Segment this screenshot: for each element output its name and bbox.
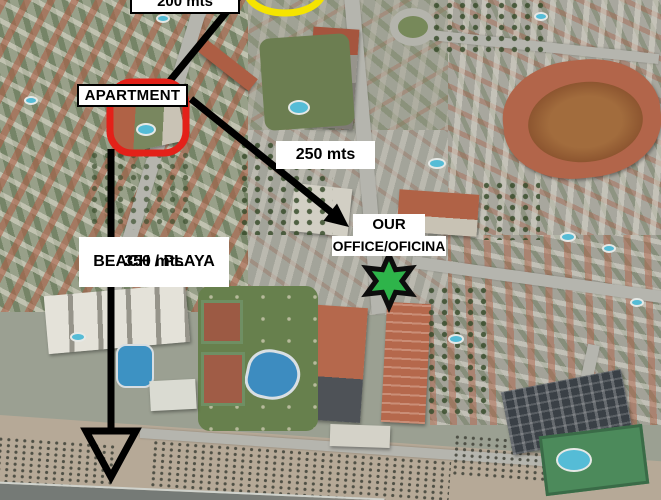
office-label: OUR OFFICE/OFICINA [331,214,447,256]
office-label-line2: OFFICE/OFICINA [332,236,446,256]
office-label-line1: OUR [353,214,425,236]
satellite-map: 200 mts APARTMENT 250 mts OUR OFFICE/OFI… [0,0,661,500]
office-star-icon [367,255,412,307]
beach-name: BEACH / PLAYA [93,252,215,271]
destination-yellow-ellipse [247,0,323,13]
beach-arrow-icon [86,431,136,477]
distance-label-200: 200 mts [130,0,240,14]
beach-distance-label: 350 mts BEACH / PLAYA [79,237,229,287]
distance-label-250: 250 mts [276,141,375,169]
apartment-label: APARTMENT [77,84,188,107]
